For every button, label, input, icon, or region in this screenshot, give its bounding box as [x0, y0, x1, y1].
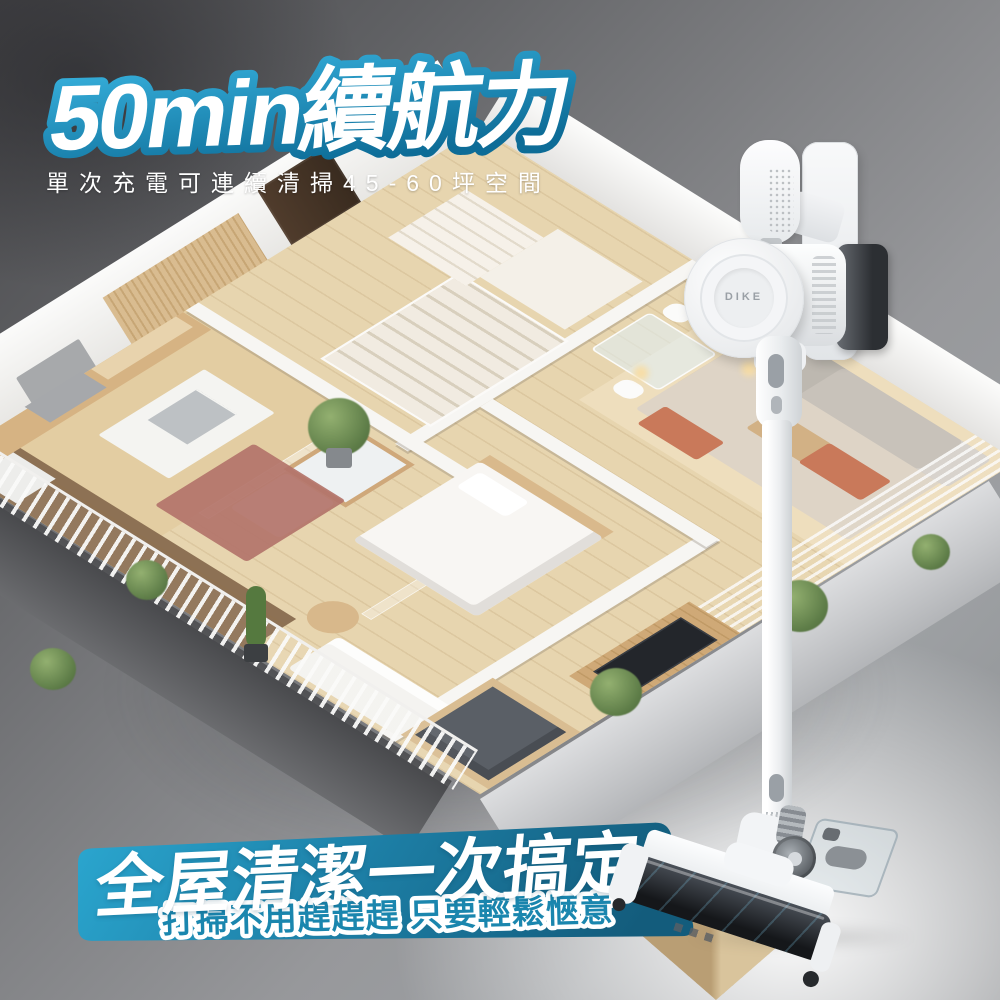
- pendant-lamp: [630, 362, 652, 384]
- promo-page: 打掃不用趕趕趕 只要輕鬆愜意 全屋清潔一次搞定! DIKE: [0, 0, 1000, 1000]
- head-wheel: [801, 969, 821, 989]
- handle-vents: [768, 168, 794, 232]
- page-subtitle: 單次充電可連續清掃45-60坪空間: [46, 164, 551, 198]
- plant: [912, 534, 950, 570]
- cactus: [246, 586, 266, 648]
- plant: [590, 668, 642, 716]
- handle-bridge: [783, 189, 846, 244]
- plant-pot: [244, 644, 268, 662]
- plant: [772, 580, 828, 632]
- plant: [126, 560, 168, 600]
- pendant-lamp: [738, 358, 760, 380]
- house-lower-corner: [588, 902, 844, 1000]
- plant-pot: [326, 448, 352, 468]
- plant: [30, 648, 76, 690]
